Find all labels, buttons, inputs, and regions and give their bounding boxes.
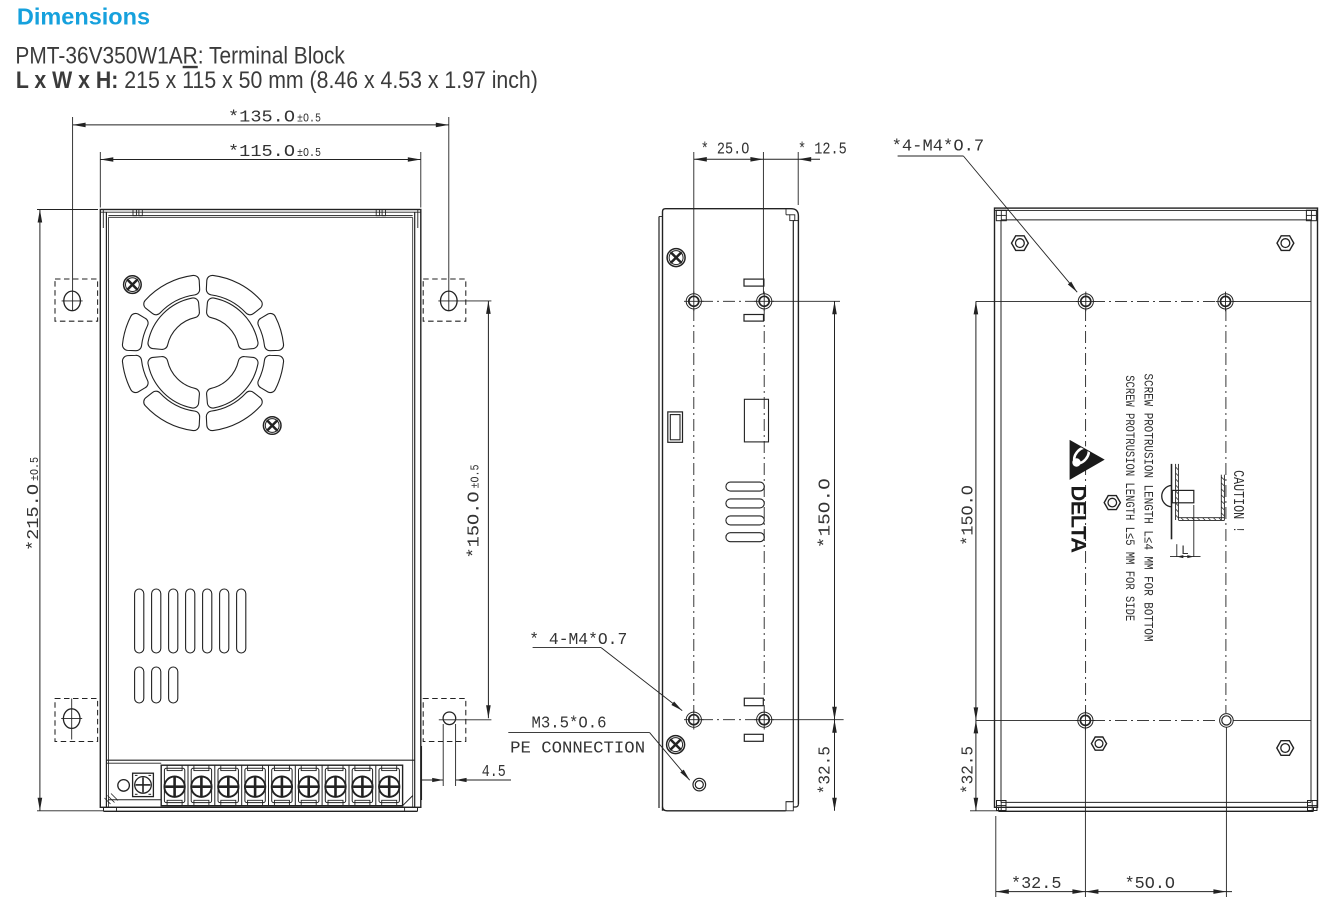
svg-text:±O.5: ±O.5	[297, 146, 321, 160]
svg-text:*32.5: *32.5	[959, 746, 978, 794]
svg-text:4.5: 4.5	[482, 762, 506, 781]
svg-text:*15O.O: *15O.O	[959, 485, 978, 546]
svg-text:L: L	[1181, 543, 1189, 558]
svg-text:DELTA: DELTA	[1066, 486, 1089, 553]
svg-text:*5O.O: *5O.O	[1125, 874, 1175, 893]
svg-text:*115.O: *115.O	[228, 142, 295, 161]
svg-text:Dimensions: Dimensions	[17, 3, 150, 29]
svg-text:±O.5: ±O.5	[28, 457, 42, 481]
svg-text:*135.O: *135.O	[228, 107, 295, 126]
svg-text:SCREW PROTRUSION LENGTH L≤4 MM: SCREW PROTRUSION LENGTH L≤4 MM FOR BOTTO…	[1141, 374, 1156, 642]
svg-text:±O.5: ±O.5	[469, 465, 483, 489]
svg-text:* 25.O: * 25.O	[701, 140, 750, 159]
svg-text:SCREW PROTRUSION LENGTH L≤5 MM: SCREW PROTRUSION LENGTH L≤5 MM FOR SIDE	[1122, 375, 1137, 621]
svg-text:*15O.O: *15O.O	[465, 491, 484, 558]
svg-text:*32.5: *32.5	[1011, 874, 1061, 893]
svg-text:L x W x H: 215 x 115 x 50 mm (: L x W x H: 215 x 115 x 50 mm (8.46 x 4.5…	[16, 66, 538, 94]
svg-text:*15O.O: *15O.O	[816, 478, 835, 548]
svg-text:CAUTION !: CAUTION !	[1229, 470, 1245, 533]
svg-text:PE CONNECTION: PE CONNECTION	[510, 739, 645, 758]
svg-text:±O.5: ±O.5	[297, 111, 321, 125]
svg-text:M3.5*O.6: M3.5*O.6	[532, 714, 607, 733]
svg-text:* 4-M4*O.7: * 4-M4*O.7	[529, 630, 627, 649]
svg-text:*215.O: *215.O	[24, 484, 43, 551]
svg-text:*4-M4*O.7: *4-M4*O.7	[892, 137, 985, 156]
svg-text:*32.5: *32.5	[816, 746, 835, 794]
svg-text:* 12.5: * 12.5	[798, 140, 847, 159]
